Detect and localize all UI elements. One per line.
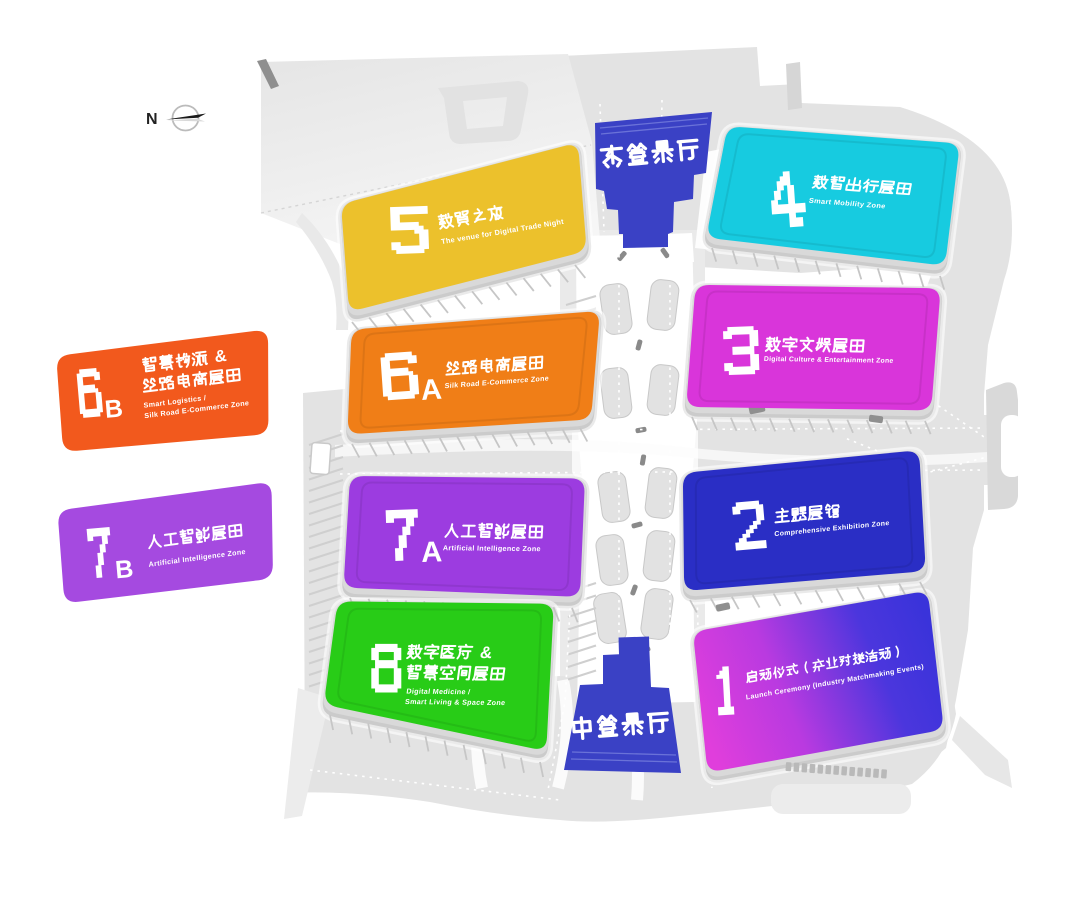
svg-text:&: & [479, 643, 494, 662]
svg-text:B: B [104, 394, 124, 423]
svg-text:B: B [114, 555, 134, 584]
svg-text:Smart Living & Space Zone: Smart Living & Space Zone [404, 697, 506, 707]
svg-text:N: N [146, 111, 158, 128]
svg-text:Artificial Intelligence Zone: Artificial Intelligence Zone [443, 543, 542, 553]
svg-text:A: A [421, 536, 443, 569]
svg-text:A: A [420, 374, 443, 407]
svg-text:Digital Medicine /: Digital Medicine / [406, 687, 471, 697]
svg-text:&: & [214, 346, 227, 366]
